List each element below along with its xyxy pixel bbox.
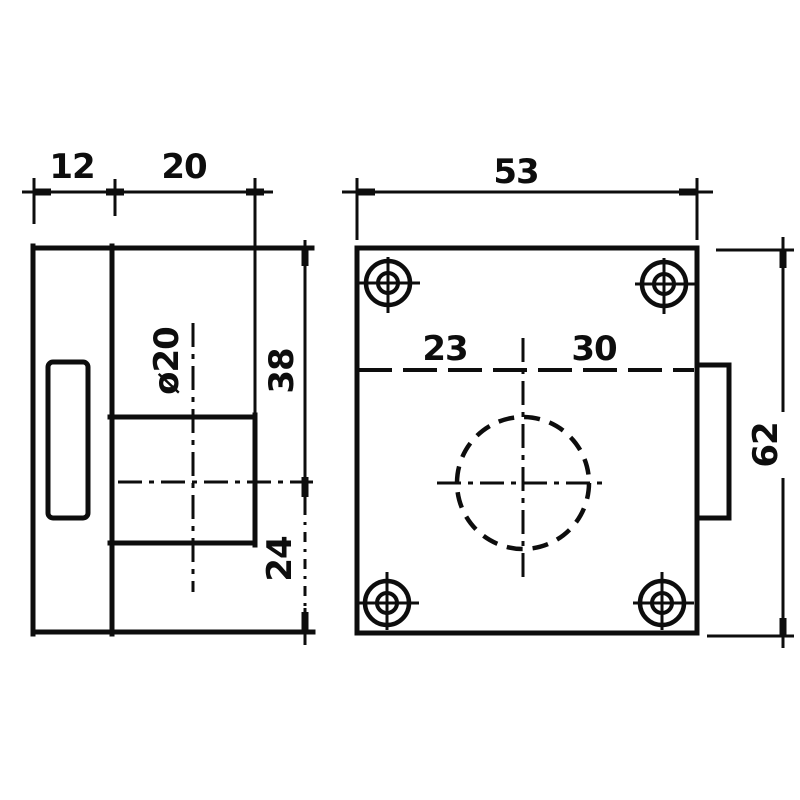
dim-label-center-to-bottom: 24 (260, 536, 300, 582)
latch-protrusion-outline (697, 365, 729, 518)
drawing-page: 12 20 ø20 38 24 (0, 0, 800, 800)
dim-label-top-to-center: 38 (262, 348, 302, 393)
front-view: 53 23 30 62 (342, 152, 794, 648)
front-plate-outline (357, 248, 697, 633)
dim-label-cylinder-length: 20 (161, 147, 207, 187)
side-slot-outline (48, 362, 88, 518)
dim-label-center-offset-left: 23 (422, 329, 467, 369)
dim-label-plate-thickness: 12 (49, 147, 94, 187)
dim-label-cylinder-diameter: ø20 (147, 327, 187, 395)
dim-label-center-offset-right: 30 (571, 329, 617, 369)
dim-label-overall-width: 53 (493, 152, 538, 192)
side-view: 12 20 ø20 38 24 (22, 147, 313, 645)
technical-drawing: 12 20 ø20 38 24 (0, 0, 800, 800)
dim-label-overall-height: 62 (746, 422, 786, 467)
